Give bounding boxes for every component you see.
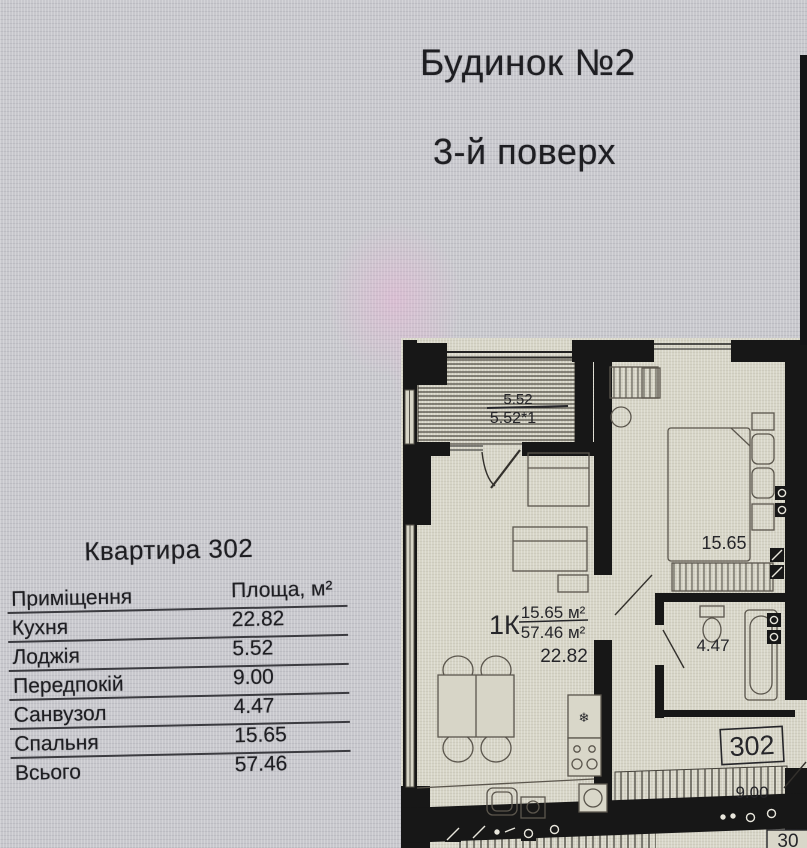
chair	[481, 734, 511, 762]
desk-chair	[611, 407, 631, 427]
kitchen-area-label: 22.82	[540, 646, 588, 667]
bedroom-door-leaf	[615, 575, 652, 615]
pillow	[752, 468, 774, 498]
apartment-info-block: Квартира 302 Приміщення Площа, м² Кухня …	[6, 531, 351, 786]
sofa-section	[528, 453, 589, 506]
table-row-total: Всього 57.46	[11, 752, 351, 786]
building-title: Будинок №2	[420, 42, 636, 84]
stove	[568, 738, 601, 776]
bedroom-area-label: 15.65	[701, 533, 746, 553]
bathroom-door-leaf	[663, 630, 684, 668]
nightstand	[752, 504, 774, 530]
counter-edge	[417, 779, 594, 788]
hall-area-label: 9.00	[735, 783, 768, 802]
room-name: Спальня	[14, 731, 99, 757]
apartment-number-box: 302	[720, 726, 784, 764]
apartment-number-label: 302	[729, 730, 776, 762]
room-area: 9.00	[233, 665, 274, 690]
col-room-header: Приміщення	[11, 585, 132, 612]
bedroom-furniture	[610, 367, 774, 591]
apartment-heading: Квартира 302	[84, 531, 347, 567]
fridge-snowflake-icon: ❄	[579, 710, 590, 725]
photo-edge-shadow	[800, 55, 807, 345]
screen-photo: Будинок №2 3-й поверх Квартира 302 Примі…	[0, 0, 807, 848]
total-name: Всього	[15, 760, 82, 785]
balcony-door-leaf	[491, 450, 520, 488]
total-area: 57.46	[235, 752, 288, 777]
toilet-tank	[700, 606, 724, 617]
bathroom-area-label: 4.47	[696, 636, 729, 655]
room-area: 4.47	[233, 694, 274, 719]
boiler	[579, 784, 607, 812]
room-name: Санвузол	[13, 702, 106, 728]
adjacent-apartment-box: 30	[767, 830, 807, 848]
living-area-label: 15.65 м²	[521, 603, 586, 622]
shelf	[752, 413, 774, 430]
total-area-label: 57.46 м²	[521, 623, 586, 642]
sofa-section	[513, 527, 587, 571]
loggia-area-full-label: 5.52	[503, 391, 532, 408]
floor-plan: 5.52 5.52*1 1К 15.65 м² 57.46 м² 22.82 1…	[401, 338, 807, 848]
adjacent-apartment-label: 30	[777, 831, 798, 848]
room-name: Передпокій	[13, 673, 124, 699]
floor-title: 3-й поверх	[433, 131, 616, 173]
loggia-area-coeff-label: 5.52*1	[490, 410, 536, 427]
balcony-door-arc	[482, 452, 495, 486]
col-area-header: Площа, м²	[231, 577, 333, 603]
unit-type-label: 1К	[489, 610, 520, 640]
coffee-table	[558, 575, 588, 592]
wardrobe	[672, 563, 773, 591]
room-area: 5.52	[232, 636, 273, 661]
room-name: Лоджія	[12, 644, 80, 669]
pillow	[752, 434, 774, 464]
room-area: 15.65	[234, 723, 287, 748]
chair	[443, 734, 473, 762]
room-area: 22.82	[232, 607, 285, 632]
room-name: Кухня	[12, 616, 69, 641]
desk	[610, 367, 658, 398]
